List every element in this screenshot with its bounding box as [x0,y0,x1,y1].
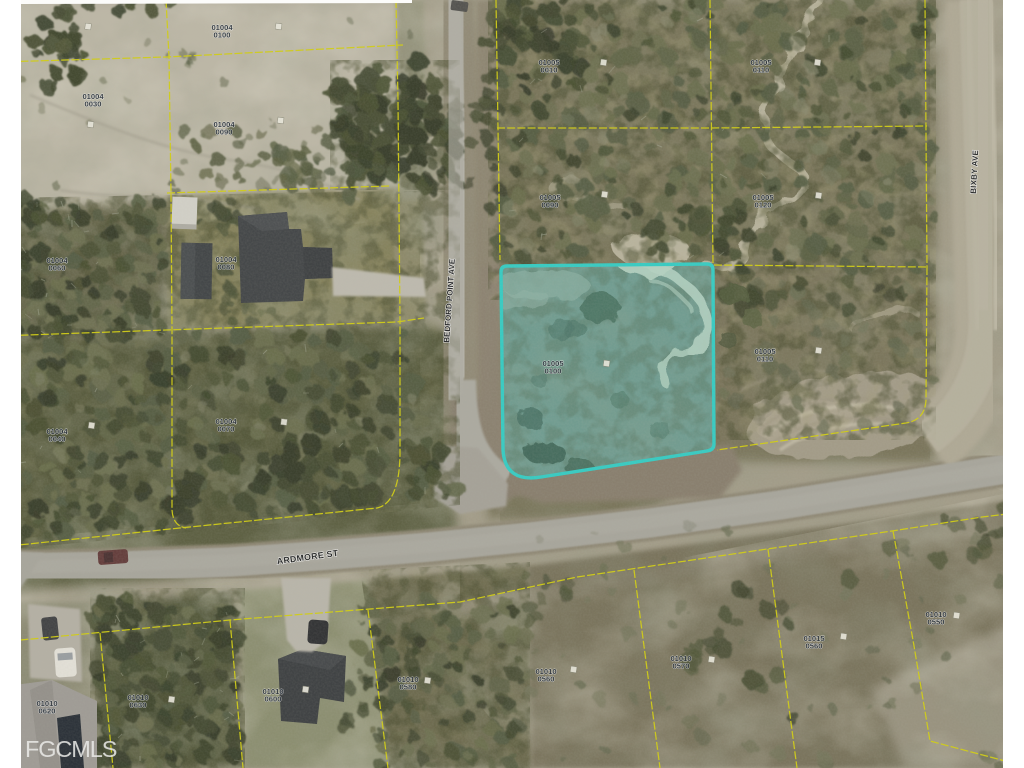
svg-text:FGCMLS: FGCMLS [25,736,117,762]
